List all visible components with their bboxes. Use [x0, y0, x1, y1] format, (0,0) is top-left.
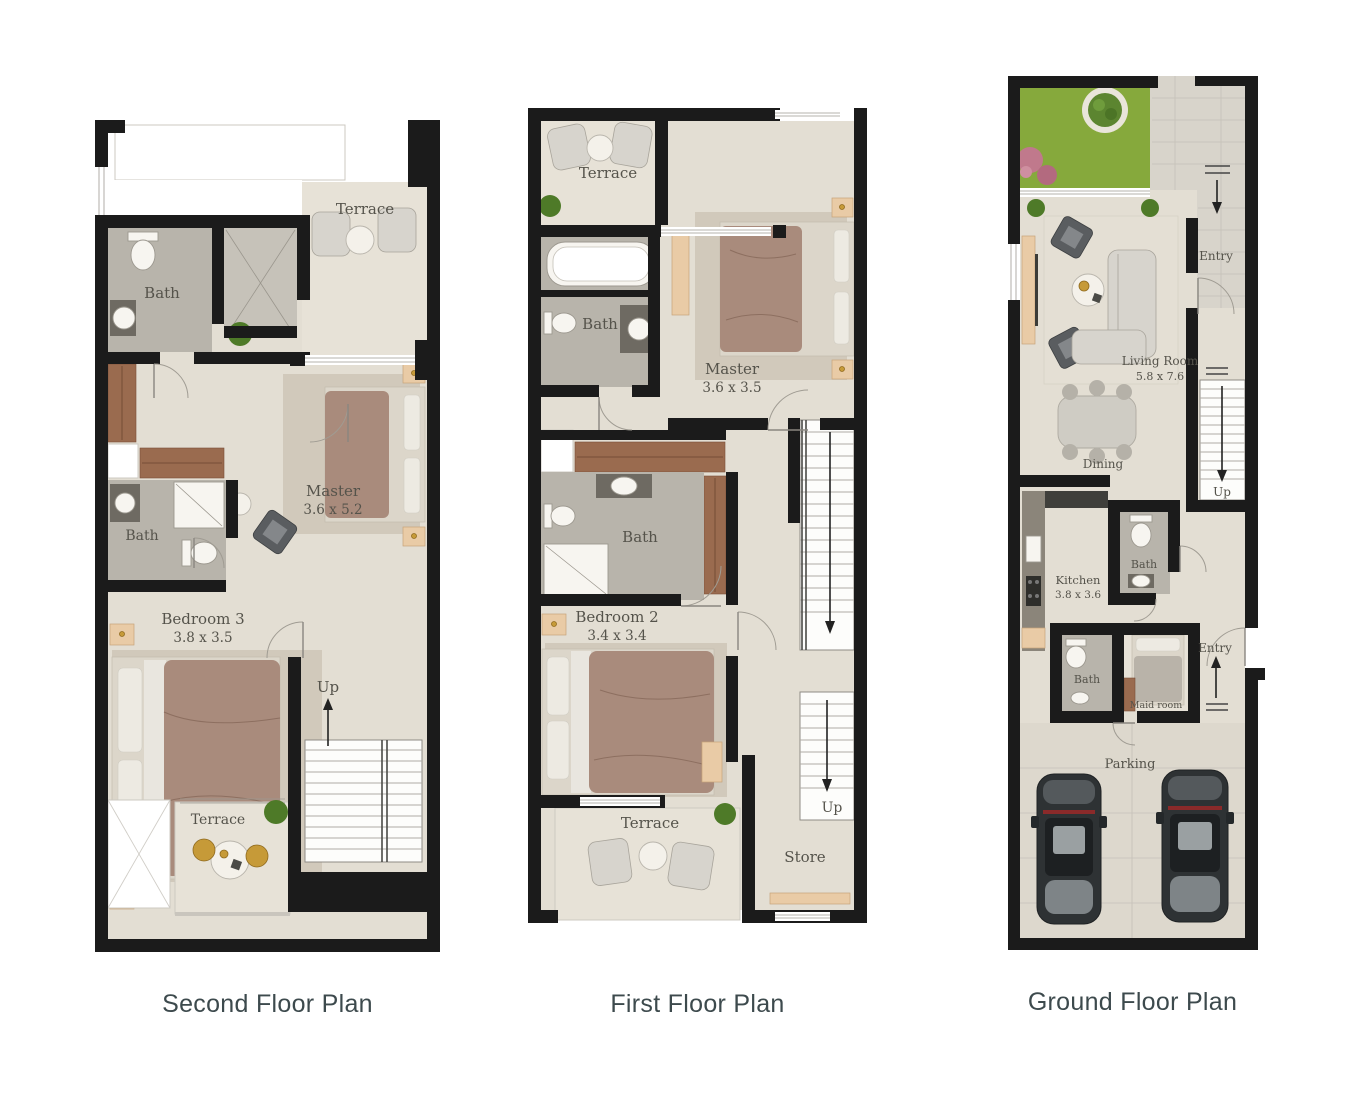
round-table-icon: [211, 841, 249, 879]
room-label-master-dim: 3.6 x 3.5: [702, 380, 761, 396]
bathtub-icon: [553, 247, 649, 281]
shower-area: [224, 228, 297, 338]
plan-caption: Ground Floor Plan: [1000, 988, 1265, 1017]
room-label-terrace-top: Terrace: [579, 164, 637, 182]
bath-upper: [1118, 512, 1170, 594]
second-floor-plan: Terrace Bath Master 3.6 x 5.2 Bath Bedro…: [90, 112, 445, 957]
room-label-entry-top: Entry: [1199, 249, 1233, 263]
room-label-up: Up: [1213, 485, 1231, 499]
room-label-terrace-bottom: Terrace: [191, 812, 245, 828]
second-floor-plan-drawing: Terrace Bath Master 3.6 x 5.2 Bath Bedro…: [90, 112, 445, 957]
room-label-bedroom3-dim: 3.8 x 3.5: [173, 630, 232, 646]
room-label-bath-mid: Bath: [125, 528, 158, 544]
room-label-entry-mid: Entry: [1198, 641, 1232, 655]
plant-icon: [264, 800, 288, 824]
floor-plans-sheet: Terrace Bath Master 3.6 x 5.2 Bath Bedro…: [0, 0, 1360, 1100]
round-table-icon: [587, 135, 613, 161]
plan-caption: Second Floor Plan: [90, 990, 445, 1019]
room-label-bedroom2: Bedroom 2: [575, 608, 658, 626]
armchair-icon: [312, 212, 350, 256]
room-label-bath-lower: Bath: [1074, 673, 1100, 686]
staircase: [1200, 368, 1245, 500]
armchair-icon: [587, 837, 633, 886]
room-label-bath-mid: Bath: [622, 528, 658, 546]
armchair-icon: [667, 841, 715, 891]
round-table-icon: [346, 226, 374, 254]
room-label-bedroom3: Bedroom 3: [161, 610, 244, 628]
master-bedroom: [672, 198, 854, 380]
round-table-icon: [639, 842, 667, 870]
flower-bush-icon: [1037, 165, 1057, 185]
kitchen-counter: [1045, 491, 1108, 508]
ground-floor-plan: Entry Living Room 5.8 x 7.6 Dining Up Ba…: [1000, 68, 1265, 958]
plant-icon: [714, 803, 736, 825]
tv-console: [1022, 236, 1035, 344]
room-label-master: Master: [705, 360, 760, 378]
car-icon: [1031, 774, 1107, 924]
room-label-maid: Maid room: [1130, 700, 1183, 711]
plant-icon: [1027, 199, 1045, 217]
room-label-master: Master: [306, 482, 361, 500]
side-table: [702, 742, 722, 782]
plan-caption: First Floor Plan: [520, 990, 875, 1019]
chair-icon: [193, 839, 215, 861]
first-floor-plan-drawing: Terrace Bath Master 3.6 x 3.5 Bath Bedro…: [520, 100, 875, 930]
void-light-well: [108, 800, 170, 908]
kitchen-counter: [1022, 491, 1045, 651]
bath-top: [541, 237, 660, 387]
room-label-master-dim: 3.6 x 5.2: [303, 502, 362, 518]
room-label-store: Store: [784, 848, 826, 866]
dresser: [672, 235, 689, 315]
first-floor-plan: Terrace Bath Master 3.6 x 3.5 Bath Bedro…: [520, 100, 875, 930]
ground-floor-plan-drawing: Entry Living Room 5.8 x 7.6 Dining Up Ba…: [1000, 68, 1265, 958]
room-label-bedroom2-dim: 3.4 x 3.4: [587, 628, 646, 644]
void-top: [108, 180, 302, 215]
room-label-up: Up: [317, 678, 339, 696]
room-label-parking: Parking: [1105, 757, 1156, 772]
tv-icon: [1035, 254, 1038, 326]
chair-icon: [246, 845, 268, 867]
armchair-icon: [609, 121, 654, 169]
room-label-bath-top: Bath: [582, 315, 618, 333]
room-label-kitchen: Kitchen: [1056, 573, 1102, 587]
staircase: [305, 740, 422, 862]
dining-table-icon: [1058, 396, 1136, 448]
room-label-living-dim: 5.8 x 7.6: [1136, 370, 1184, 383]
room-label-bath-top: Bath: [144, 284, 180, 302]
store-shelf: [770, 893, 850, 904]
open-to-sky: [115, 125, 345, 180]
parking: [1020, 723, 1245, 938]
plant-icon: [539, 195, 561, 217]
staircase-upper: [800, 420, 854, 650]
room-label-kitchen-dim: 3.8 x 3.6: [1055, 589, 1101, 601]
room-label-up: Up: [822, 800, 843, 816]
room-label-dining: Dining: [1083, 457, 1124, 471]
room-label-terrace-bottom: Terrace: [621, 814, 679, 832]
room-label-living: Living Room: [1122, 354, 1199, 368]
room-label-bath-upper: Bath: [1131, 558, 1157, 571]
plant-icon: [1141, 199, 1159, 217]
dining: [1058, 380, 1136, 464]
room-label-terrace-top: Terrace: [336, 200, 394, 218]
garden: [1017, 82, 1150, 190]
car-icon: [1156, 770, 1234, 922]
